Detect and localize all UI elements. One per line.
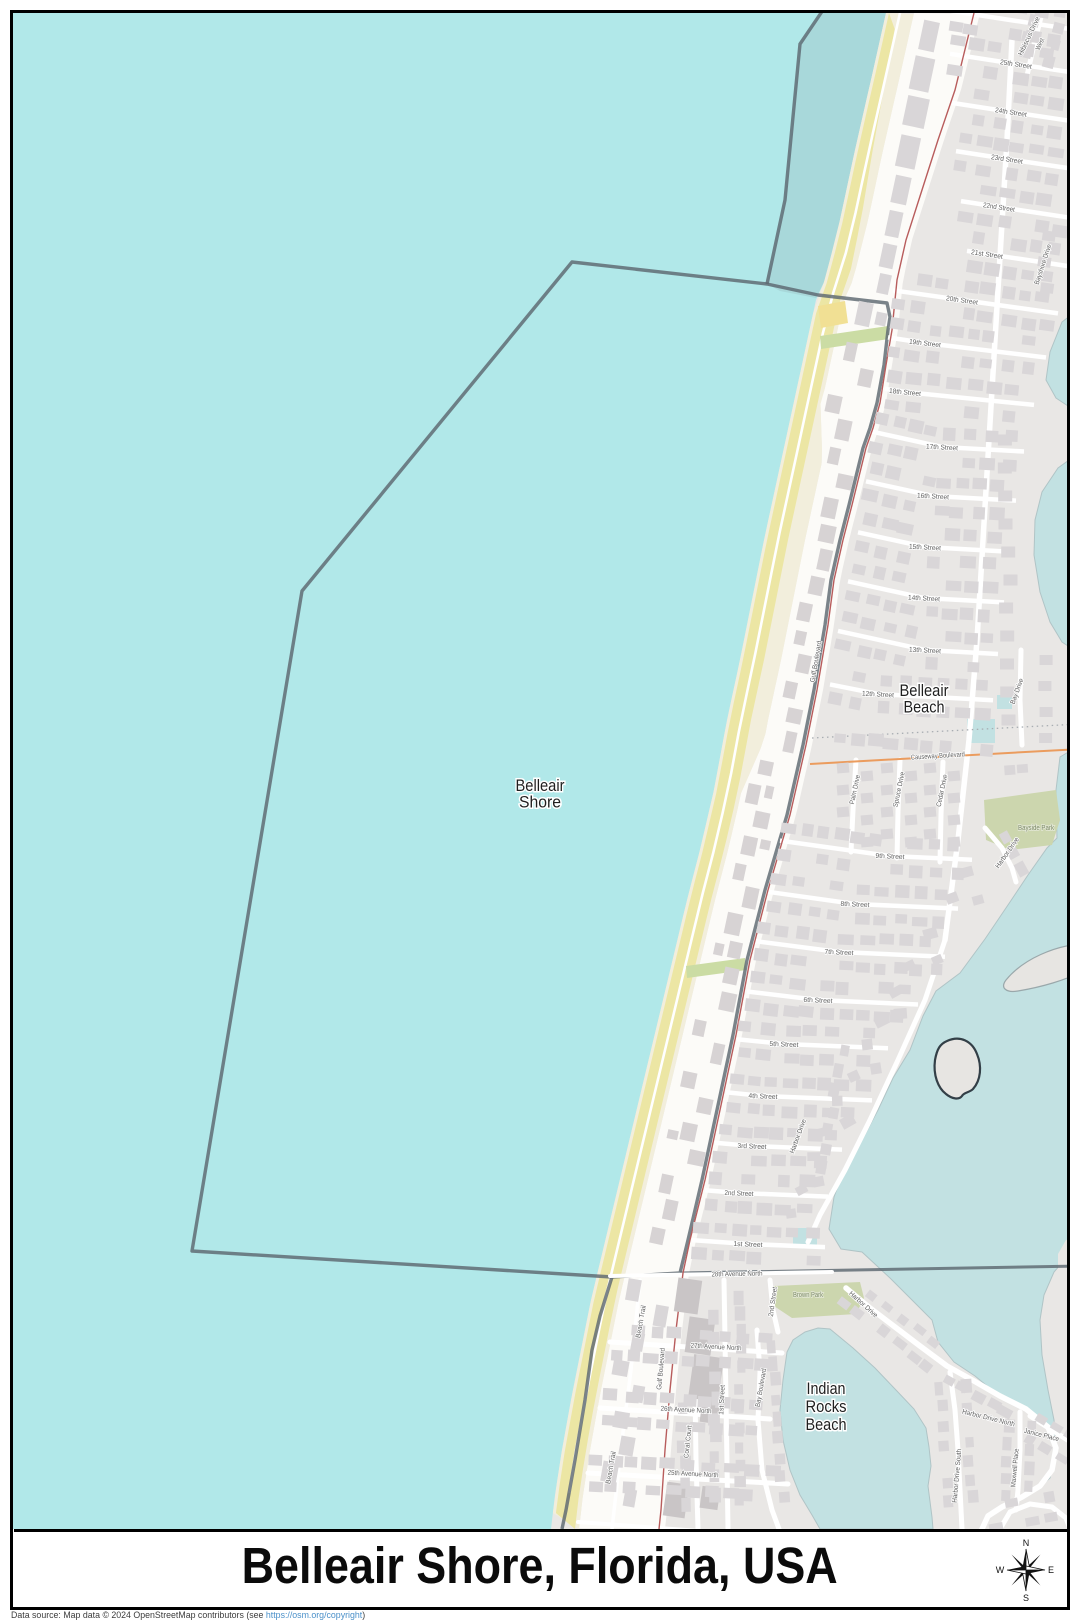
svg-text:Belleair: Belleair bbox=[516, 777, 565, 795]
svg-text:Beach: Beach bbox=[904, 699, 945, 717]
svg-text:3rd Street: 3rd Street bbox=[737, 1143, 766, 1151]
svg-text:4th Street: 4th Street bbox=[748, 1093, 777, 1101]
svg-text:1st Street: 1st Street bbox=[733, 1241, 762, 1249]
svg-text:Bayside Park: Bayside Park bbox=[1018, 825, 1054, 832]
svg-text:Brown Park: Brown Park bbox=[793, 1292, 823, 1299]
svg-text:Rocks: Rocks bbox=[806, 1398, 847, 1416]
svg-text:7th Street: 7th Street bbox=[824, 949, 853, 957]
svg-text:2nd Street: 2nd Street bbox=[724, 1190, 753, 1198]
svg-text:Belleair: Belleair bbox=[900, 682, 949, 700]
svg-text:8th Street: 8th Street bbox=[840, 901, 869, 909]
svg-text:5th Street: 5th Street bbox=[769, 1041, 798, 1049]
svg-text:Shore: Shore bbox=[519, 794, 561, 812]
svg-text:E: E bbox=[1048, 1565, 1054, 1575]
svg-text:9th Street: 9th Street bbox=[875, 853, 904, 861]
svg-text:S: S bbox=[1023, 1593, 1029, 1603]
svg-text:28th Avenue North: 28th Avenue North bbox=[711, 1271, 762, 1279]
svg-text:6th Street: 6th Street bbox=[803, 997, 832, 1005]
svg-text:Indian: Indian bbox=[807, 1380, 846, 1398]
svg-text:N: N bbox=[1023, 1538, 1030, 1548]
svg-text:Beach: Beach bbox=[806, 1416, 847, 1434]
svg-text:W: W bbox=[996, 1565, 1005, 1575]
